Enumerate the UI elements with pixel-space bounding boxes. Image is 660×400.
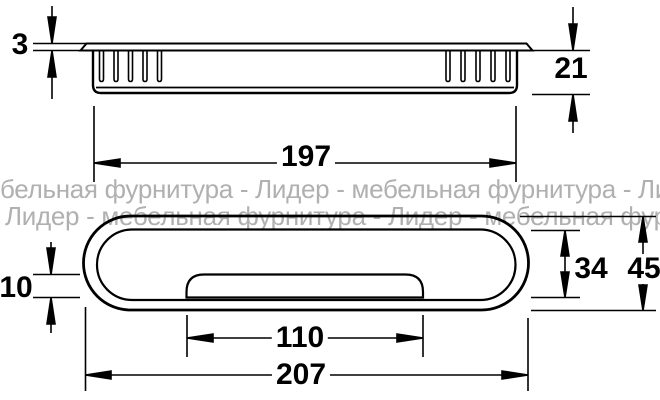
- dim-label-inner-height: 34: [574, 254, 607, 284]
- dim-label-lip-height: 10: [0, 273, 33, 303]
- dim-label-body-length: 197: [277, 142, 335, 172]
- dim-label-lid-length: 110: [272, 323, 328, 353]
- technical-drawing-cable-grommet: бельная фурнитура - Лидер - мебельная фу…: [0, 0, 660, 400]
- dim-lip-height-graphics: [33, 242, 80, 333]
- arrowhead-up: [47, 298, 55, 325]
- arrowhead-down: [569, 24, 577, 51]
- arrowhead-right: [490, 159, 516, 167]
- vent-slot: [114, 51, 118, 82]
- vent-slot: [506, 51, 510, 82]
- dim-label-overall-length: 207: [272, 360, 330, 390]
- arrowhead-left: [86, 371, 112, 379]
- vent-slot: [476, 51, 480, 82]
- vent-slot: [100, 51, 104, 82]
- plan-view: [84, 216, 529, 310]
- dim-inner-height-graphics: [531, 231, 580, 298]
- vent-slot: [129, 51, 133, 82]
- flange-profile: [81, 44, 533, 51]
- arrowhead-down: [48, 17, 56, 44]
- lid-lip-outline: [187, 275, 424, 298]
- arrowhead-left: [94, 159, 120, 167]
- arrowhead-up: [569, 95, 577, 122]
- arrowhead-down: [561, 272, 569, 298]
- dim-label-outer-height: 45: [623, 254, 660, 284]
- arrowhead-right: [397, 334, 423, 342]
- dim-label-flange-thickness: 3: [12, 30, 29, 60]
- arrowhead-down: [47, 248, 55, 275]
- inner-opening-outline: [97, 230, 516, 301]
- vent-slot: [158, 51, 162, 82]
- arrowhead-left: [187, 334, 213, 342]
- vent-slot: [143, 51, 147, 82]
- arrowhead-right: [502, 371, 528, 379]
- body-profile: [93, 50, 517, 93]
- vent-slot: [446, 51, 450, 82]
- arrowhead-up: [48, 51, 56, 78]
- arrowhead-up: [561, 231, 569, 257]
- dim-label-recess-depth: 21: [554, 54, 587, 84]
- vent-slot: [461, 51, 465, 82]
- side-view: [81, 44, 533, 94]
- vent-slot: [491, 51, 495, 82]
- arrowhead-down: [639, 285, 647, 311]
- arrowhead-up: [639, 217, 647, 243]
